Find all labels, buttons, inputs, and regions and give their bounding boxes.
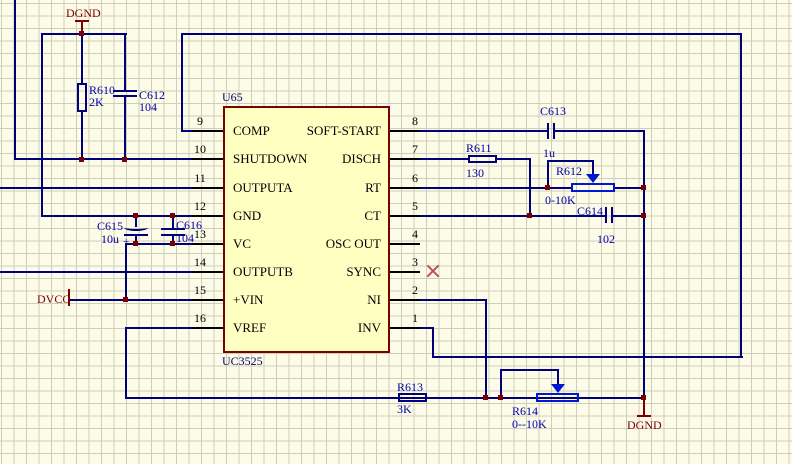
capacitor-c614-plate-left[interactable] xyxy=(605,207,607,223)
wire-gnd-riser[interactable] xyxy=(41,33,43,216)
wire-ni-drop[interactable] xyxy=(485,299,487,399)
capacitor-c615-ref[interactable]: C615 xyxy=(97,220,123,232)
pin-number: 1 xyxy=(401,312,429,325)
capacitor-c612-value[interactable]: 104 xyxy=(139,101,157,113)
pin-4-stub[interactable] xyxy=(390,243,420,245)
wire-ni[interactable] xyxy=(420,299,487,301)
pin-8-stub[interactable] xyxy=(390,130,420,132)
wire-r611-drop[interactable] xyxy=(529,158,531,217)
wire-inner-rail[interactable] xyxy=(643,130,645,398)
capacitor-c615-plus: + xyxy=(123,236,129,248)
resistor-r613-value[interactable]: 3K xyxy=(397,403,412,415)
wire-softstart-b[interactable] xyxy=(555,130,645,132)
pin-13-stub[interactable] xyxy=(192,243,223,245)
pin-number: 8 xyxy=(401,115,429,128)
potentiometer-r612-body[interactable] xyxy=(571,183,615,192)
wire-c612-bot[interactable] xyxy=(124,96,126,160)
pin-name: RT xyxy=(240,181,381,195)
junction-dot xyxy=(483,395,488,400)
potentiometer-r612-ref[interactable]: R612 xyxy=(556,165,582,177)
junction-dot xyxy=(545,185,550,190)
wire-outputa[interactable] xyxy=(0,187,192,189)
pin-name: DISCH xyxy=(240,152,381,166)
wire-inv-jog[interactable] xyxy=(432,327,434,358)
wire-comp[interactable] xyxy=(182,130,192,132)
capacitor-c613-value[interactable]: 1u xyxy=(543,147,555,159)
pin-name: OSC OUT xyxy=(240,237,381,251)
junction-dot xyxy=(170,213,175,218)
pin-6-stub[interactable] xyxy=(390,187,420,189)
wire-shutdown-riser[interactable] xyxy=(14,0,16,160)
pin-10-stub[interactable] xyxy=(192,158,223,160)
potentiometer-r614-value[interactable]: 0--10K xyxy=(512,418,547,430)
capacitor-c613-plate-right[interactable] xyxy=(553,123,555,139)
capacitor-c614-value[interactable]: 102 xyxy=(597,233,615,245)
pin-1-stub[interactable] xyxy=(390,327,420,329)
wire-disch-b[interactable] xyxy=(497,158,531,160)
potentiometer-r614-body[interactable] xyxy=(536,393,579,402)
wire-vref-drop[interactable] xyxy=(125,327,127,399)
capacitor-c612-plate-bottom[interactable] xyxy=(113,95,137,97)
wire-vc-drop[interactable] xyxy=(125,243,127,301)
pin-number: 12 xyxy=(186,200,214,213)
potentiometer-r612-wiper-arrow[interactable] xyxy=(586,174,600,183)
pin-number: 4 xyxy=(401,228,429,241)
ic-u65-body[interactable] xyxy=(223,106,390,353)
pin-number: 11 xyxy=(186,172,214,185)
wire-vin[interactable] xyxy=(69,299,192,301)
junction-dot xyxy=(170,241,175,246)
junction-dot xyxy=(79,157,84,162)
junction-dot xyxy=(79,31,84,36)
junction-dot xyxy=(123,297,128,302)
capacitor-c613-plate-left[interactable] xyxy=(547,123,549,139)
pin-name: NI xyxy=(240,293,381,307)
resistor-r610-body[interactable] xyxy=(77,83,87,112)
pin-name: CT xyxy=(240,209,381,223)
resistor-r611-value[interactable]: 130 xyxy=(466,167,484,179)
wire-vref[interactable] xyxy=(126,327,192,329)
potentiometer-r612-value[interactable]: 0-10K xyxy=(545,194,576,206)
wire-dgnd-top[interactable] xyxy=(42,33,127,35)
ic-designator[interactable]: U65 xyxy=(222,91,243,103)
capacitor-c612-plate-top[interactable] xyxy=(113,90,137,92)
wire-r610-top[interactable] xyxy=(81,33,83,83)
wire-outer-rail[interactable] xyxy=(740,33,742,357)
capacitor-c616-ref[interactable]: C616 xyxy=(176,219,202,231)
junction-dot xyxy=(641,185,646,190)
capacitor-c615-value[interactable]: 10u xyxy=(101,233,119,245)
pin-name: SOFT-START xyxy=(240,124,381,138)
pin-7-stub[interactable] xyxy=(390,158,420,160)
wire-inv-b[interactable] xyxy=(433,356,743,358)
potentiometer-r614-ref[interactable]: R614 xyxy=(512,405,538,417)
pin-name: INV xyxy=(240,321,381,335)
wire-r614-drop[interactable] xyxy=(500,369,502,399)
pin-number: 10 xyxy=(186,143,214,156)
ground-stem xyxy=(643,398,645,416)
power-port-dgnd-top-label[interactable]: DGND xyxy=(66,7,101,19)
wire-r614-wiper[interactable] xyxy=(501,369,559,371)
pin-16-stub[interactable] xyxy=(192,327,223,329)
pin-2-stub[interactable] xyxy=(390,299,420,301)
pin-12-stub[interactable] xyxy=(192,215,223,217)
schematic-sheet: U65 UC3525 9 10 11 12 13 14 15 16 8 7 6 … xyxy=(0,0,792,464)
no-connect-x-icon[interactable] xyxy=(425,263,441,279)
wire-disch-a[interactable] xyxy=(420,158,468,160)
junction-dot xyxy=(641,395,646,400)
pin-number: 9 xyxy=(186,115,214,128)
junction-dot xyxy=(133,213,138,218)
pin-number: 14 xyxy=(186,256,214,269)
resistor-r613-ref[interactable]: R613 xyxy=(397,381,423,393)
pin-3-stub[interactable] xyxy=(390,271,420,273)
wire-c612-top[interactable] xyxy=(124,33,126,90)
capacitor-c615-plate-curved[interactable] xyxy=(124,224,148,231)
pin-number: 2 xyxy=(401,284,429,297)
pin-number: 16 xyxy=(186,312,214,325)
resistor-r610-value[interactable]: 2K xyxy=(89,96,104,108)
pin-9-stub[interactable] xyxy=(192,130,223,132)
resistor-r611-ref[interactable]: R611 xyxy=(466,142,492,154)
pin-14-stub[interactable] xyxy=(192,271,223,273)
wire-softstart-a[interactable] xyxy=(420,130,548,132)
capacitor-c616-value[interactable]: 104 xyxy=(176,232,194,244)
wire-outputb[interactable] xyxy=(0,271,192,273)
resistor-r611-body[interactable] xyxy=(468,155,497,163)
junction-dot xyxy=(122,157,127,162)
wire-comp-inv-top[interactable] xyxy=(182,33,742,35)
pin-number: 5 xyxy=(401,200,429,213)
pin-name: SYNC xyxy=(240,265,381,279)
junction-dot xyxy=(641,213,646,218)
power-port-dgnd-bottom-label[interactable]: DGND xyxy=(627,419,662,431)
capacitor-c613-ref[interactable]: C613 xyxy=(540,105,566,117)
ground-bar-icon xyxy=(637,415,651,417)
pin-number: 6 xyxy=(401,172,429,185)
potentiometer-r614-wiper-arrow[interactable] xyxy=(551,384,565,393)
pin-5-stub[interactable] xyxy=(390,215,420,217)
junction-dot xyxy=(498,395,503,400)
junction-dot xyxy=(527,213,532,218)
pin-number: 7 xyxy=(401,143,429,156)
capacitor-c614-plate-right[interactable] xyxy=(611,207,613,223)
pin-15-stub[interactable] xyxy=(192,299,223,301)
pin-11-stub[interactable] xyxy=(192,187,223,189)
capacitor-c614-ref[interactable]: C614 xyxy=(577,205,603,217)
ic-part-number[interactable]: UC3525 xyxy=(222,355,263,367)
wire-r610-bot[interactable] xyxy=(81,112,83,160)
power-port-dvcc-label[interactable]: DVCC xyxy=(37,293,70,305)
resistor-r613-body[interactable] xyxy=(398,393,427,402)
pin-number: 15 xyxy=(186,284,214,297)
dvcc-port-bar-icon xyxy=(68,289,70,306)
junction-dot xyxy=(133,241,138,246)
wire-comp-riser[interactable] xyxy=(181,33,183,132)
